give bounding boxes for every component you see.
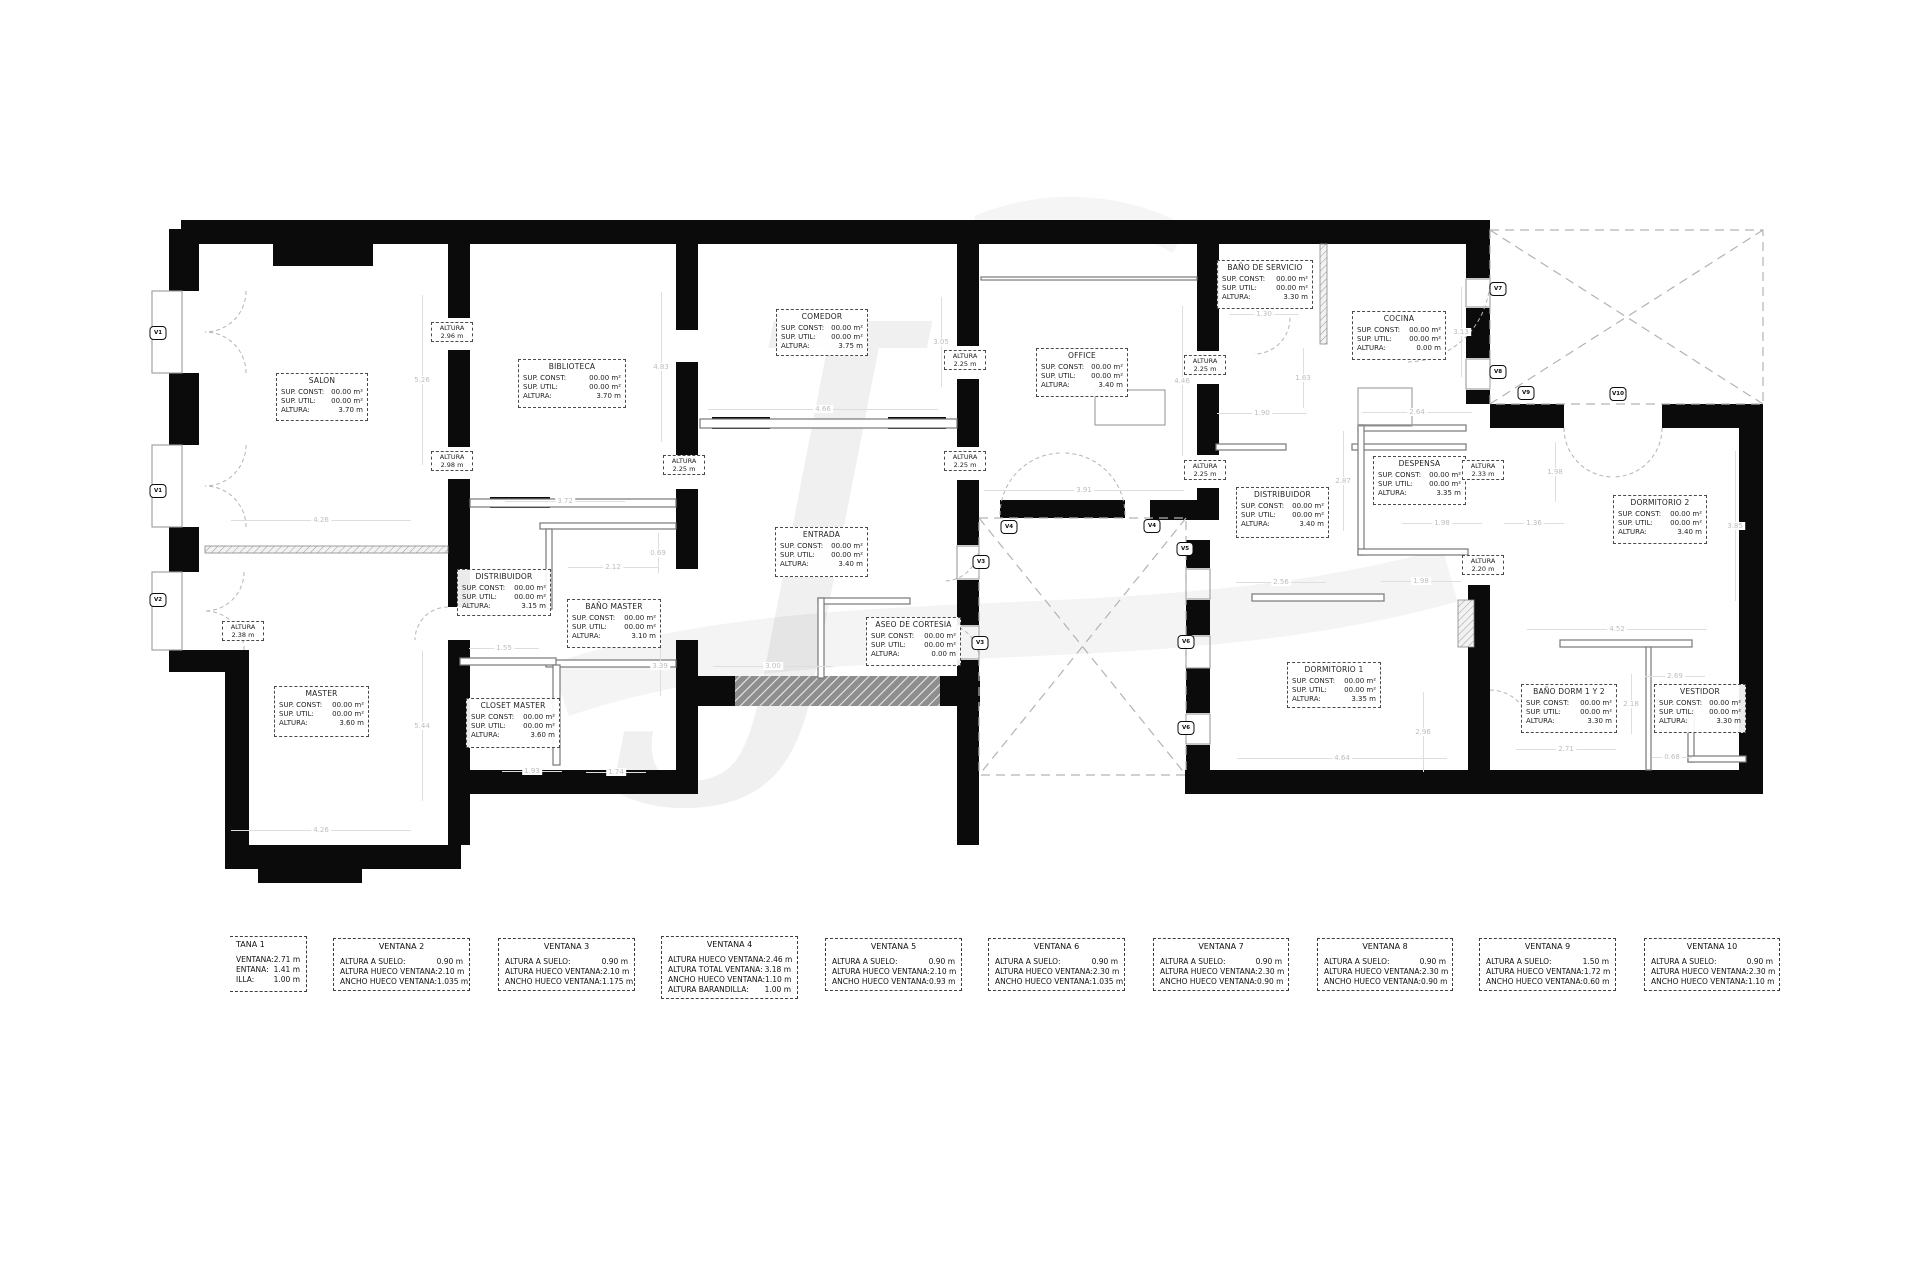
altura-tag: ALTURA2.98 m xyxy=(431,451,473,471)
room-data-row: SUP. CONST:00.00 m² xyxy=(1526,699,1612,708)
ventana-data-row: ANCHO HUECO VENTANA:0.60 m xyxy=(1486,977,1609,987)
room-label-dormitorio-1: DORMITORIO 1SUP. CONST:00.00 m²SUP. UTIL… xyxy=(1287,662,1381,708)
room-data-row: ALTURA:3.15 m xyxy=(462,602,546,611)
floor-plan-page: J xyxy=(0,0,1920,1280)
room-data-label: SUP. CONST: xyxy=(1659,699,1702,708)
ventana-data-value: 2.30 m xyxy=(1422,967,1448,977)
ventana-data-label: ALTURA HUECO VENTANA: xyxy=(340,967,438,977)
room-label-dormitorio-2: DORMITORIO 2SUP. CONST:00.00 m²SUP. UTIL… xyxy=(1613,495,1707,544)
room-data-row: SUP. UTIL:00.00 m² xyxy=(1618,519,1702,528)
room-data-row: ALTURA:3.70 m xyxy=(523,392,621,401)
ventana-data-value: 2.71 m xyxy=(274,955,300,965)
room-label-ba-o-dorm-1-y-2: BAÑO DORM 1 Y 2SUP. CONST:00.00 m²SUP. U… xyxy=(1521,684,1617,733)
ventana-title: VENTANA 3 xyxy=(505,942,628,951)
room-data-label: SUP. UTIL: xyxy=(471,722,506,731)
ventana-title: VENTANA 8 xyxy=(1324,942,1446,951)
ventana-data-row: ALTURA HUECO VENTANA:2.10 m xyxy=(505,967,628,977)
ventana-data-row: ALTURA HUECO VENTANA:2.30 m xyxy=(1160,967,1282,977)
room-label-office: OFFICESUP. CONST:00.00 m²SUP. UTIL:00.00… xyxy=(1036,348,1128,397)
ventana-data-value: 2.10 m xyxy=(930,967,956,977)
dimension-text: 3.05 xyxy=(931,338,951,346)
room-data-row: SUP. CONST:00.00 m² xyxy=(871,632,956,641)
room-data-value: 3.75 m xyxy=(838,342,863,351)
room-data-row: SUP. UTIL:00.00 m² xyxy=(471,722,555,731)
room-data-row: SUP. CONST:00.00 m² xyxy=(780,542,863,551)
room-data-label: ALTURA: xyxy=(572,632,601,641)
room-data-value: 3.60 m xyxy=(339,719,364,728)
room-data-value: 00.00 m² xyxy=(1344,677,1376,686)
ventana-data-label: ALTURA A SUELO: xyxy=(1486,957,1551,967)
ventana-spec-box: TANA 1VENTANA:2.71 mENTANA:1.41 mILLA:1.… xyxy=(230,936,307,992)
room-data-row: SUP. CONST:00.00 m² xyxy=(1378,471,1461,480)
ventana-data-label: ANCHO HUECO VENTANA: xyxy=(340,977,437,987)
dimension-text: 1.55 xyxy=(494,644,514,652)
room-data-label: SUP. UTIL: xyxy=(1659,708,1694,717)
window-marker-v5: V5 xyxy=(1177,542,1194,556)
room-name: BAÑO DORM 1 Y 2 xyxy=(1526,687,1612,696)
room-data-label: ALTURA: xyxy=(1241,520,1270,529)
room-name: DORMITORIO 2 xyxy=(1618,498,1702,507)
dimension-text: 1.90 xyxy=(1252,409,1272,417)
altura-tag: ALTURA2.33 m xyxy=(1462,460,1504,480)
room-label-salon: SALONSUP. CONST:00.00 m²SUP. UTIL:00.00 … xyxy=(276,373,368,421)
room-data-label: SUP. UTIL: xyxy=(1292,686,1327,695)
room-data-row: ALTURA:3.30 m xyxy=(1659,717,1741,726)
room-data-value: 00.00 m² xyxy=(1709,699,1741,708)
ventana-data-value: 1.10 m xyxy=(1748,977,1774,987)
altura-tag: ALTURA2.20 m xyxy=(1462,555,1504,575)
altura-tag: ALTURA2.25 m xyxy=(1184,460,1226,480)
room-name: OFFICE xyxy=(1041,351,1123,360)
room-data-value: 00.00 m² xyxy=(514,593,546,602)
ventana-data-label: ALTURA A SUELO: xyxy=(340,957,405,967)
ventana-data-value: 2.10 m xyxy=(603,967,629,977)
ventana-spec-box: VENTANA 7ALTURA A SUELO:0.90 mALTURA HUE… xyxy=(1153,938,1289,991)
altura-tag-word: ALTURA xyxy=(1185,357,1225,365)
room-data-row: SUP. CONST:00.00 m² xyxy=(281,388,363,397)
room-data-row: SUP. UTIL:00.00 m² xyxy=(279,710,364,719)
room-data-value: 00.00 m² xyxy=(624,623,656,632)
room-data-label: SUP. CONST: xyxy=(1292,677,1335,686)
room-data-value: 00.00 m² xyxy=(624,614,656,623)
window-marker-v3: V3 xyxy=(972,636,989,650)
ventana-data-row: ALTURA HUECO VENTANA:2.30 m xyxy=(1324,967,1446,977)
dimension-text: 1.63 xyxy=(1293,374,1313,382)
room-data-value: 00.00 m² xyxy=(1670,519,1702,528)
ventana-data-row: ALTURA A SUELO:0.90 m xyxy=(1160,957,1282,967)
dimension-text: 1.98 xyxy=(1432,519,1452,527)
dimension-text: 3.13 xyxy=(1451,328,1471,336)
room-label-aseo-de-cortesia: ASEO DE CORTESIASUP. CONST:00.00 m²SUP. … xyxy=(866,617,961,666)
ventana-spec-box: VENTANA 2ALTURA A SUELO:0.90 mALTURA HUE… xyxy=(333,938,470,991)
room-name: BAÑO DE SERVICIO xyxy=(1222,263,1308,272)
room-data-label: SUP. UTIL: xyxy=(871,641,906,650)
room-data-row: ALTURA:3.40 m xyxy=(780,560,863,569)
ventana-data-label: ALTURA HUECO VENTANA: xyxy=(505,967,603,977)
room-data-label: SUP. UTIL: xyxy=(1222,284,1257,293)
room-data-label: SUP. UTIL: xyxy=(781,333,816,342)
ventana-data-value: 1.50 m xyxy=(1583,957,1609,967)
room-data-label: ALTURA: xyxy=(523,392,552,401)
room-data-row: SUP. UTIL:00.00 m² xyxy=(1378,480,1461,489)
ventana-data-label: ENTANA: xyxy=(236,965,269,975)
room-data-row: SUP. UTIL:00.00 m² xyxy=(462,593,546,602)
room-data-value: 00.00 m² xyxy=(1292,511,1324,520)
ventana-title: VENTANA 6 xyxy=(995,942,1118,951)
room-data-label: SUP. CONST: xyxy=(1618,510,1661,519)
ventana-data-value: 1.41 m xyxy=(274,965,300,975)
room-data-row: SUP. CONST:00.00 m² xyxy=(1241,502,1324,511)
room-data-label: SUP. UTIL: xyxy=(1378,480,1413,489)
room-data-row: SUP. UTIL:00.00 m² xyxy=(1659,708,1741,717)
room-label-ba-o-master: BAÑO MASTERSUP. CONST:00.00 m²SUP. UTIL:… xyxy=(567,599,661,648)
ventana-data-row: ANCHO HUECO VENTANA:0.90 m xyxy=(1324,977,1446,987)
ventana-data-row: ALTURA A SUELO:0.90 m xyxy=(340,957,463,967)
room-label-cocina: COCINASUP. CONST:00.00 m²SUP. UTIL:00.00… xyxy=(1352,311,1446,360)
ventana-data-row: ANCHO HUECO VENTANA:0.93 m xyxy=(832,977,955,987)
room-data-value: 00.00 m² xyxy=(1091,363,1123,372)
room-data-value: 3.40 m xyxy=(838,560,863,569)
room-label-closet-master: CLOSET MASTERSUP. CONST:00.00 m²SUP. UTI… xyxy=(466,698,560,748)
ventana-data-row: ILLA:1.00 m xyxy=(236,975,300,985)
dimension-text: 1.74 xyxy=(606,768,626,776)
room-data-row: ALTURA:3.35 m xyxy=(1378,489,1461,498)
room-data-row: SUP. UTIL:00.00 m² xyxy=(780,551,863,560)
ventana-data-row: ANCHO HUECO VENTANA:1.10 m xyxy=(1651,977,1773,987)
room-data-label: ALTURA: xyxy=(1292,695,1321,704)
room-data-row: ALTURA:3.35 m xyxy=(1292,695,1376,704)
room-name: COCINA xyxy=(1357,314,1441,323)
ventana-data-value: 2.10 m xyxy=(438,967,464,977)
room-data-value: 00.00 m² xyxy=(332,710,364,719)
ventana-data-row: ANCHO HUECO VENTANA:1.10 m xyxy=(668,975,791,985)
room-data-label: ALTURA: xyxy=(1618,528,1647,537)
dimension-text: 4.46 xyxy=(1172,377,1192,385)
altura-tag-value: 2.33 m xyxy=(1463,470,1503,478)
room-name: BAÑO MASTER xyxy=(572,602,656,611)
room-data-value: 00.00 m² xyxy=(831,333,863,342)
altura-tag: ALTURA2.25 m xyxy=(944,350,986,370)
room-label-biblioteca: BIBLIOTECASUP. CONST:00.00 m²SUP. UTIL:0… xyxy=(518,359,626,408)
ventana-data-label: ALTURA HUECO VENTANA: xyxy=(1160,967,1258,977)
dimension-text: 2.18 xyxy=(1621,700,1641,708)
room-name: DORMITORIO 1 xyxy=(1292,665,1376,674)
dimension-text: 2.64 xyxy=(1407,408,1427,416)
room-data-value: 3.30 m xyxy=(1716,717,1741,726)
dimension-text: 2.96 xyxy=(1413,728,1433,736)
ventana-title: VENTANA 2 xyxy=(340,942,463,951)
ventana-title: VENTANA 4 xyxy=(668,940,791,949)
room-data-value: 00.00 m² xyxy=(1292,502,1324,511)
altura-tag-word: ALTURA xyxy=(664,457,704,465)
altura-tag-value: 2.25 m xyxy=(1185,470,1225,478)
room-label-master: MASTERSUP. CONST:00.00 m²SUP. UTIL:00.00… xyxy=(274,686,369,737)
dimension-text: 4.66 xyxy=(813,405,833,413)
room-data-label: SUP. CONST: xyxy=(1241,502,1284,511)
dimension-text: 1.98 xyxy=(1545,468,1565,476)
altura-tag: ALTURA2.25 m xyxy=(944,451,986,471)
room-data-row: SUP. CONST:00.00 m² xyxy=(1041,363,1123,372)
window-marker-v4: V4 xyxy=(1144,519,1161,533)
altura-tag-value: 2.25 m xyxy=(945,461,985,469)
ventana-spec-box: VENTANA 9ALTURA A SUELO:1.50 mALTURA HUE… xyxy=(1479,938,1616,991)
room-name: BIBLIOTECA xyxy=(523,362,621,371)
window-marker-v3: V3 xyxy=(973,555,990,569)
room-data-value: 3.40 m xyxy=(1098,381,1123,390)
room-data-label: ALTURA: xyxy=(279,719,308,728)
ventana-data-row: ALTURA A SUELO:0.90 m xyxy=(995,957,1118,967)
room-data-value: 00.00 m² xyxy=(1276,284,1308,293)
dimension-text: 3.00 xyxy=(763,662,783,670)
room-data-label: SUP. UTIL: xyxy=(279,710,314,719)
room-data-label: SUP. UTIL: xyxy=(1357,335,1392,344)
ventana-data-value: 0.90 m xyxy=(1420,957,1446,967)
ventana-spec-box: VENTANA 6ALTURA A SUELO:0.90 mALTURA HUE… xyxy=(988,938,1125,991)
ventana-data-label: ALTURA BARANDILLA: xyxy=(668,985,749,995)
ventana-data-value: 0.90 m xyxy=(1092,957,1118,967)
room-name: CLOSET MASTER xyxy=(471,701,555,710)
dimension-text: 4.52 xyxy=(1607,625,1627,633)
room-data-label: ALTURA: xyxy=(780,560,809,569)
room-data-value: 00.00 m² xyxy=(589,383,621,392)
ventana-data-value: 0.90 m xyxy=(1256,957,1282,967)
altura-tag: ALTURA2.96 m xyxy=(431,322,473,342)
dimension-text: 4.26 xyxy=(311,826,331,834)
ventana-data-value: 1.10 m xyxy=(765,975,791,985)
ventana-spec-box: VENTANA 4ALTURA HUECO VENTANA:2.46 mALTU… xyxy=(661,936,798,999)
dimension-text: 3.91 xyxy=(1074,486,1094,494)
room-data-row: SUP. UTIL:00.00 m² xyxy=(1357,335,1441,344)
ventana-data-label: VENTANA: xyxy=(236,955,274,965)
room-data-value: 00.00 m² xyxy=(1580,699,1612,708)
ventana-data-row: ALTURA HUECO VENTANA:2.30 m xyxy=(1651,967,1773,977)
window-marker-v10: V10 xyxy=(1610,387,1627,401)
room-data-label: SUP. CONST: xyxy=(279,701,322,710)
room-data-value: 00.00 m² xyxy=(589,374,621,383)
ventana-data-value: 2.46 m xyxy=(766,955,792,965)
room-data-value: 3.40 m xyxy=(1299,520,1324,529)
room-data-label: ALTURA: xyxy=(281,406,310,415)
room-data-value: 00.00 m² xyxy=(514,584,546,593)
room-label-despensa: DESPENSASUP. CONST:00.00 m²SUP. UTIL:00.… xyxy=(1373,456,1466,505)
ventana-data-label: ANCHO HUECO VENTANA: xyxy=(668,975,765,985)
altura-tag-word: ALTURA xyxy=(1463,557,1503,565)
ventana-spec-box: VENTANA 8ALTURA A SUELO:0.90 mALTURA HUE… xyxy=(1317,938,1453,991)
ventana-data-row: ALTURA A SUELO:1.50 m xyxy=(1486,957,1609,967)
room-data-row: ALTURA:3.40 m xyxy=(1041,381,1123,390)
room-data-label: SUP. UTIL: xyxy=(1618,519,1653,528)
ventana-data-label: ALTURA TOTAL VENTANA: xyxy=(668,965,763,975)
window-marker-v7: V7 xyxy=(1490,282,1507,296)
room-data-label: SUP. UTIL: xyxy=(572,623,607,632)
ventana-data-value: 1.035 m xyxy=(437,977,468,987)
room-data-value: 3.10 m xyxy=(631,632,656,641)
room-data-value: 00.00 m² xyxy=(331,397,363,406)
room-data-value: 3.60 m xyxy=(530,731,555,740)
ventana-data-row: ALTURA HUECO VENTANA:2.46 m xyxy=(668,955,791,965)
room-data-value: 00.00 m² xyxy=(332,701,364,710)
room-data-row: ALTURA:3.60 m xyxy=(471,731,555,740)
ventana-data-label: ALTURA A SUELO: xyxy=(505,957,570,967)
room-data-label: ALTURA: xyxy=(1041,381,1070,390)
room-data-label: SUP. CONST: xyxy=(1378,471,1421,480)
ventana-data-row: ANCHO HUECO VENTANA:1.175 m xyxy=(505,977,628,987)
dimension-text: 2.69 xyxy=(1665,672,1685,680)
room-data-value: 00.00 m² xyxy=(1276,275,1308,284)
dimension-text: 1.98 xyxy=(1411,577,1431,585)
dimension-text: 1.30 xyxy=(1254,310,1274,318)
dimension-text: 5.44 xyxy=(412,722,432,730)
room-name: DISTRIBUIDOR xyxy=(462,572,546,581)
room-data-value: 3.70 m xyxy=(338,406,363,415)
room-data-row: SUP. UTIL:00.00 m² xyxy=(1222,284,1308,293)
window-marker-v9: V9 xyxy=(1518,386,1535,400)
ventana-data-row: ALTURA BARANDILLA:1.00 m xyxy=(668,985,791,995)
ventana-data-value: 2.30 m xyxy=(1749,967,1775,977)
room-data-row: ALTURA:3.40 m xyxy=(1618,528,1702,537)
window-marker-v1: V1 xyxy=(150,484,167,498)
room-data-row: ALTURA:0.00 m xyxy=(871,650,956,659)
room-data-row: SUP. CONST:00.00 m² xyxy=(572,614,656,623)
altura-tag-word: ALTURA xyxy=(945,453,985,461)
ventana-data-label: ANCHO HUECO VENTANA: xyxy=(832,977,929,987)
room-data-row: ALTURA:3.40 m xyxy=(1241,520,1324,529)
altura-tag: ALTURA2.25 m xyxy=(663,455,705,475)
altura-tag: ALTURA2.38 m xyxy=(222,621,264,641)
ventana-data-label: ALTURA A SUELO: xyxy=(832,957,897,967)
room-name: MASTER xyxy=(279,689,364,698)
dimension-text: 4.26 xyxy=(311,516,331,524)
ventana-data-value: 2.30 m xyxy=(1258,967,1284,977)
room-data-row: SUP. CONST:00.00 m² xyxy=(781,324,863,333)
ventana-data-label: ALTURA HUECO VENTANA: xyxy=(1324,967,1422,977)
room-data-row: SUP. CONST:00.00 m² xyxy=(471,713,555,722)
dimension-text: 2.87 xyxy=(1333,477,1353,485)
room-data-label: ALTURA: xyxy=(781,342,810,351)
altura-tag-value: 2.25 m xyxy=(664,465,704,473)
ventana-spec-box: VENTANA 3ALTURA A SUELO:0.90 mALTURA HUE… xyxy=(498,938,635,991)
ventana-data-row: ALTURA TOTAL VENTANA:3.18 m xyxy=(668,965,791,975)
ventana-data-label: ANCHO HUECO VENTANA: xyxy=(1486,977,1583,987)
room-data-value: 00.00 m² xyxy=(1709,708,1741,717)
room-label-entrada: ENTRADASUP. CONST:00.00 m²SUP. UTIL:00.0… xyxy=(775,527,868,577)
room-data-value: 00.00 m² xyxy=(1580,708,1612,717)
ventana-data-label: ANCHO HUECO VENTANA: xyxy=(1324,977,1421,987)
dimension-text: 4.83 xyxy=(651,363,671,371)
room-data-label: ALTURA: xyxy=(462,602,491,611)
room-data-label: SUP. CONST: xyxy=(871,632,914,641)
room-data-row: SUP. UTIL:00.00 m² xyxy=(572,623,656,632)
room-data-label: ALTURA: xyxy=(1526,717,1555,726)
altura-tag-word: ALTURA xyxy=(1463,462,1503,470)
room-data-label: ALTURA: xyxy=(1357,344,1386,353)
room-data-value: 3.70 m xyxy=(596,392,621,401)
window-marker-v2: V2 xyxy=(150,593,167,607)
room-data-label: ALTURA: xyxy=(1222,293,1251,302)
room-data-row: SUP. UTIL:00.00 m² xyxy=(281,397,363,406)
ventana-data-label: ANCHO HUECO VENTANA: xyxy=(1651,977,1748,987)
altura-tag-word: ALTURA xyxy=(432,453,472,461)
window-marker-v6: V6 xyxy=(1178,721,1195,735)
room-data-value: 00.00 m² xyxy=(831,551,863,560)
room-data-row: SUP. CONST:00.00 m² xyxy=(1222,275,1308,284)
room-data-row: SUP. UTIL:00.00 m² xyxy=(1292,686,1376,695)
room-data-value: 00.00 m² xyxy=(924,632,956,641)
room-data-value: 00.00 m² xyxy=(523,713,555,722)
window-marker-v1: V1 xyxy=(150,326,167,340)
room-data-row: ALTURA:3.30 m xyxy=(1222,293,1308,302)
room-data-label: SUP. UTIL: xyxy=(1041,372,1076,381)
room-data-row: ALTURA:0.00 m xyxy=(1357,344,1441,353)
ventana-data-label: ALTURA HUECO VENTANA: xyxy=(995,967,1093,977)
dimension-text: 4.64 xyxy=(1332,754,1352,762)
room-data-value: 00.00 m² xyxy=(1091,372,1123,381)
altura-tag-value: 2.25 m xyxy=(1185,365,1225,373)
room-data-label: SUP. CONST: xyxy=(572,614,615,623)
room-label-vestidor: VESTIDORSUP. CONST:00.00 m²SUP. UTIL:00.… xyxy=(1654,684,1746,733)
room-data-value: 00.00 m² xyxy=(331,388,363,397)
room-data-value: 00.00 m² xyxy=(1429,480,1461,489)
ventana-data-row: ANCHO HUECO VENTANA:1.035 m xyxy=(995,977,1118,987)
ventana-data-value: 0.93 m xyxy=(929,977,955,987)
ventana-title: VENTANA 5 xyxy=(832,942,955,951)
room-name: ENTRADA xyxy=(780,530,863,539)
ventana-data-row: ALTURA HUECO VENTANA:2.30 m xyxy=(995,967,1118,977)
room-data-value: 3.30 m xyxy=(1587,717,1612,726)
room-name: COMEDOR xyxy=(781,312,863,321)
altura-tag-value: 2.98 m xyxy=(432,461,472,469)
dimension-text: 1.36 xyxy=(1524,519,1544,527)
room-data-row: SUP. UTIL:00.00 m² xyxy=(523,383,621,392)
ventana-data-value: 0.90 m xyxy=(1747,957,1773,967)
room-data-row: SUP. CONST:00.00 m² xyxy=(1292,677,1376,686)
ventana-data-label: ALTURA HUECO VENTANA: xyxy=(1651,967,1749,977)
ventana-data-label: ANCHO HUECO VENTANA: xyxy=(995,977,1092,987)
ventana-data-value: 1.00 m xyxy=(765,985,791,995)
altura-tag-word: ALTURA xyxy=(223,623,263,631)
room-data-label: SUP. UTIL: xyxy=(780,551,815,560)
ventana-spec-box: VENTANA 5ALTURA A SUELO:0.90 mALTURA HUE… xyxy=(825,938,962,991)
room-data-label: ALTURA: xyxy=(1659,717,1688,726)
room-data-label: SUP. CONST: xyxy=(523,374,566,383)
room-name: DESPENSA xyxy=(1378,459,1461,468)
ventana-data-label: ANCHO HUECO VENTANA: xyxy=(1160,977,1257,987)
ventana-data-row: ALTURA A SUELO:0.90 m xyxy=(1324,957,1446,967)
room-data-label: SUP. CONST: xyxy=(471,713,514,722)
room-label-comedor: COMEDORSUP. CONST:00.00 m²SUP. UTIL:00.0… xyxy=(776,309,868,356)
room-data-value: 00.00 m² xyxy=(1409,326,1441,335)
room-data-label: ALTURA: xyxy=(1378,489,1407,498)
room-label-distribuidor: DISTRIBUIDORSUP. CONST:00.00 m²SUP. UTIL… xyxy=(1236,487,1329,538)
ventana-data-row: ANCHO HUECO VENTANA:1.035 m xyxy=(340,977,463,987)
room-data-label: SUP. CONST: xyxy=(781,324,824,333)
room-data-value: 00.00 m² xyxy=(523,722,555,731)
ventana-data-row: ALTURA A SUELO:0.90 m xyxy=(832,957,955,967)
room-data-label: SUP. CONST: xyxy=(281,388,324,397)
room-data-value: 3.35 m xyxy=(1436,489,1461,498)
room-data-value: 3.35 m xyxy=(1351,695,1376,704)
room-data-label: SUP. UTIL: xyxy=(523,383,558,392)
room-name: DISTRIBUIDOR xyxy=(1241,490,1324,499)
ventana-data-value: 2.30 m xyxy=(1093,967,1119,977)
room-data-row: ALTURA:3.70 m xyxy=(281,406,363,415)
room-data-row: SUP. UTIL:00.00 m² xyxy=(871,641,956,650)
ventana-data-label: ALTURA A SUELO: xyxy=(1160,957,1225,967)
ventana-data-row: ANCHO HUECO VENTANA:0.90 m xyxy=(1160,977,1282,987)
room-data-label: SUP. CONST: xyxy=(1041,363,1084,372)
ventana-data-row: VENTANA:2.71 m xyxy=(236,955,300,965)
room-data-row: ALTURA:3.60 m xyxy=(279,719,364,728)
